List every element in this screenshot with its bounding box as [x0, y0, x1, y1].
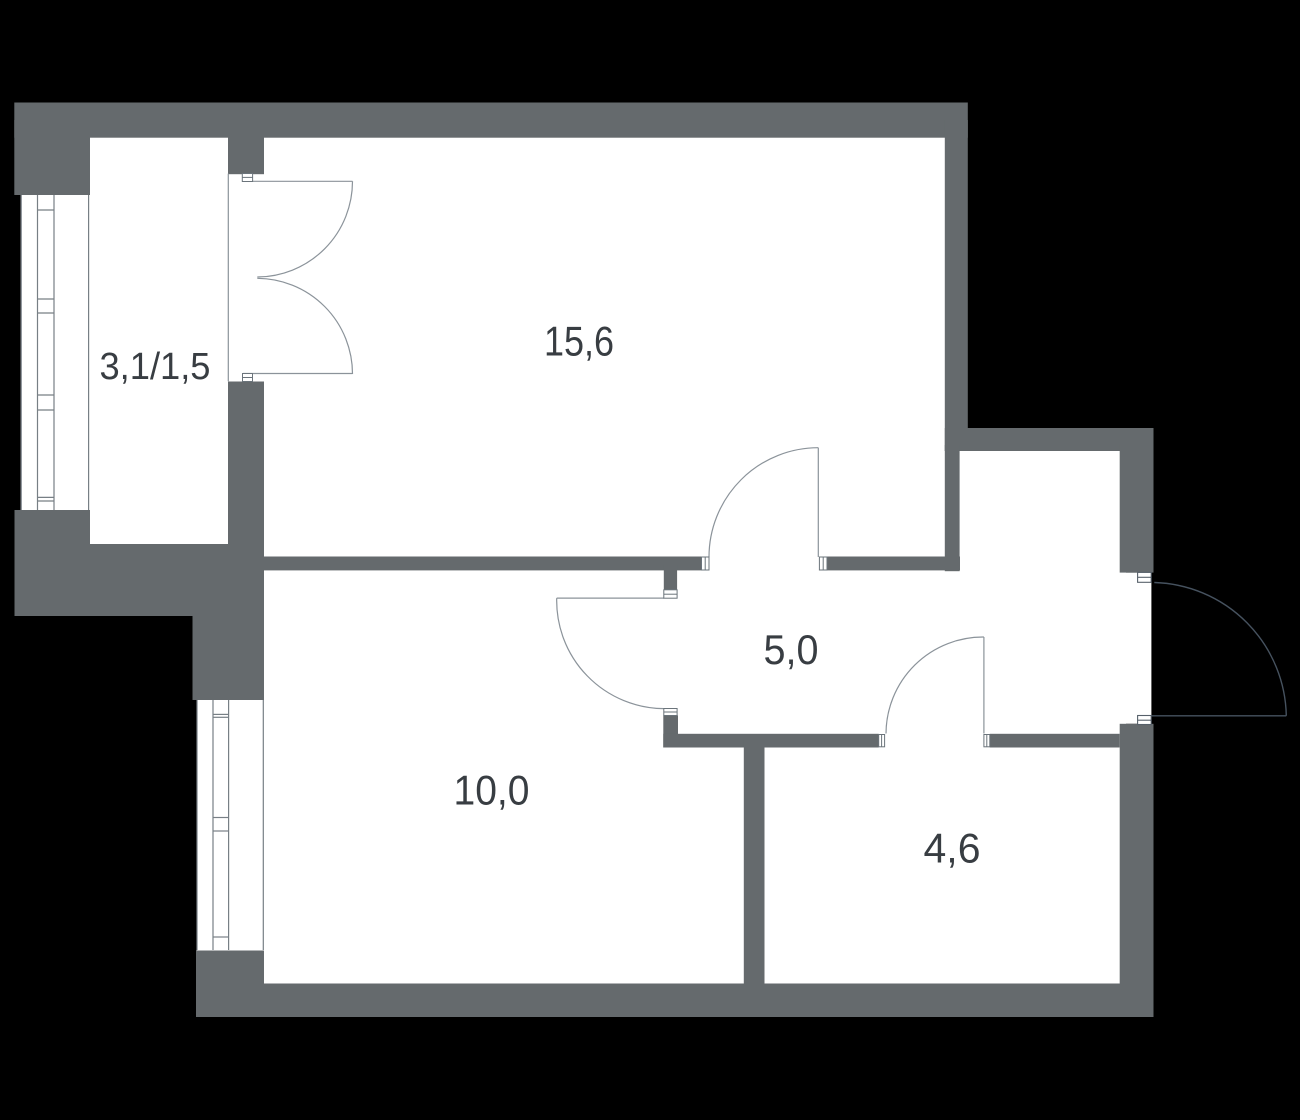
svg-text:15,6: 15,6 [544, 317, 614, 364]
svg-text:5,0: 5,0 [764, 626, 819, 673]
svg-text:4,6: 4,6 [924, 824, 981, 871]
svg-text:10,0: 10,0 [454, 767, 530, 814]
svg-text:3,1/1,5: 3,1/1,5 [100, 346, 211, 388]
